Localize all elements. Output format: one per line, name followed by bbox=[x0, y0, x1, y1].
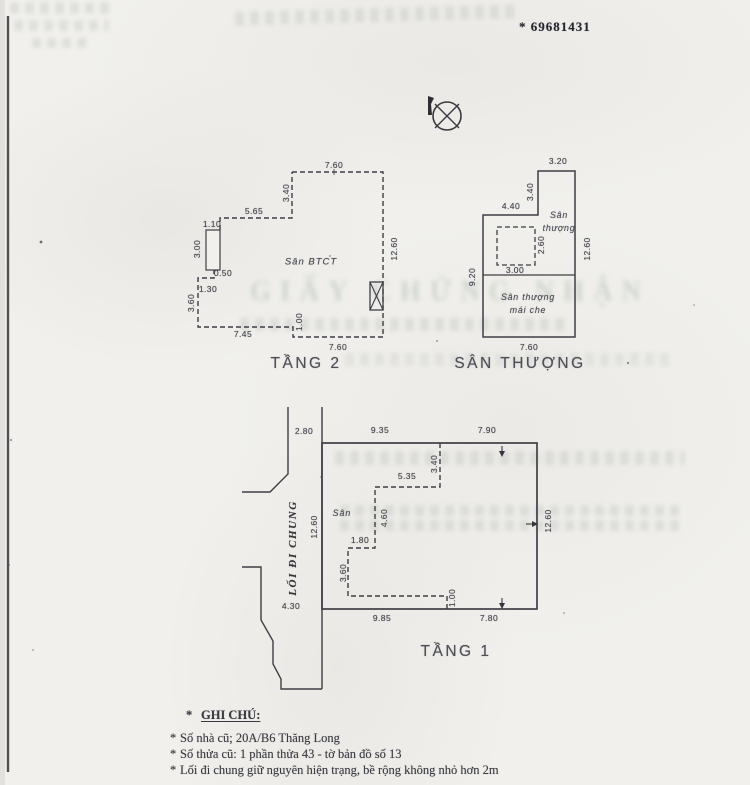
dim-label: 9.20 bbox=[467, 268, 477, 286]
notes-block: *GHI CHÚ: *Số nhà cũ; 20A/B6 Thăng Long … bbox=[170, 708, 499, 778]
dim-label: 1.30 bbox=[199, 284, 217, 294]
dim-label: 9.85 bbox=[373, 613, 391, 623]
north-arrow-icon bbox=[428, 96, 461, 130]
dim-label: 1.80 bbox=[351, 535, 369, 545]
san-thuong-area-label: Sân thượng bbox=[543, 209, 576, 235]
scanned-floor-plan-page: GIẤY CHỨNG NHẬN * 69681431 bbox=[0, 0, 750, 785]
notes-heading: *GHI CHÚ: bbox=[186, 708, 499, 723]
dim-label: 12.60 bbox=[582, 237, 592, 260]
dim-label: 4.60 bbox=[379, 509, 389, 527]
dim-label: 2.80 bbox=[295, 426, 313, 436]
dim-label: 3.00 bbox=[192, 240, 202, 258]
note-item: *Lối đi chung giữ nguyên hiện trạng, bề … bbox=[170, 762, 499, 778]
dim-label: 3.00 bbox=[506, 265, 524, 275]
dim-label: 12.60 bbox=[309, 515, 319, 538]
bullet-star: * bbox=[170, 730, 180, 746]
dim-label: 7.60 bbox=[520, 342, 538, 352]
tang1-area-label: Sân bbox=[333, 508, 352, 518]
dim-label: 3.20 bbox=[549, 156, 567, 166]
bullet-star: * bbox=[170, 746, 180, 762]
bullet-star: * bbox=[186, 708, 196, 723]
dim-label: 1.00 bbox=[294, 313, 304, 331]
tang2-area-label: Sân BTCT bbox=[285, 257, 337, 268]
dim-label: 3.40 bbox=[525, 183, 535, 201]
tang1-title: TẦNG 1 bbox=[421, 643, 492, 661]
dim-label: 3.40 bbox=[429, 455, 439, 473]
tang2-stair-box bbox=[206, 230, 220, 270]
dim-label: 5.35 bbox=[398, 471, 416, 481]
plan-linework bbox=[0, 0, 750, 785]
dim-label: 4.30 bbox=[282, 601, 300, 611]
dim-label: 9.35 bbox=[371, 425, 389, 435]
tang2-shaft-box bbox=[370, 282, 383, 310]
dim-label: 7.45 bbox=[234, 329, 252, 339]
passage-lower-left-wall bbox=[242, 567, 322, 689]
note-item: *Số thửa cũ: 1 phần thửa 43 - tờ bản đồ … bbox=[170, 746, 499, 762]
dim-label: 3.60 bbox=[186, 294, 196, 312]
passage-upper-left-wall bbox=[242, 407, 288, 492]
dim-label: 3.40 bbox=[281, 184, 291, 202]
san-thuong-covered-label: Sân thượng mái che bbox=[501, 291, 555, 317]
dim-label: 12.60 bbox=[543, 509, 553, 532]
note-item: *Số nhà cũ; 20A/B6 Thăng Long bbox=[170, 730, 499, 746]
dim-label: 7.60 bbox=[329, 342, 347, 352]
dim-label: 7.80 bbox=[480, 613, 498, 623]
passage-label: LỐI ĐI CHUNG bbox=[287, 500, 299, 596]
bullet-star: * bbox=[170, 762, 180, 778]
dim-label: 4.40 bbox=[502, 201, 520, 211]
door-arrows bbox=[499, 446, 538, 609]
dim-label: 1.00 bbox=[447, 589, 457, 607]
san-thuong-skylight bbox=[497, 227, 535, 265]
dim-label: 7.90 bbox=[478, 425, 496, 435]
dim-label: 2.60 bbox=[536, 236, 546, 254]
dim-label: 0.50 bbox=[214, 268, 232, 278]
tang2-title: TẦNG 2 bbox=[271, 355, 342, 373]
dim-label: 7.60 bbox=[325, 160, 343, 170]
san-thuong-title: SÂN THƯỢNG bbox=[454, 355, 585, 373]
scan-edge-artifacts bbox=[0, 0, 695, 785]
dim-label: 12.60 bbox=[389, 237, 399, 260]
dim-label: 5.65 bbox=[245, 206, 263, 216]
dim-label: 1.10 bbox=[203, 219, 221, 229]
dim-label: 3.60 bbox=[338, 564, 348, 582]
